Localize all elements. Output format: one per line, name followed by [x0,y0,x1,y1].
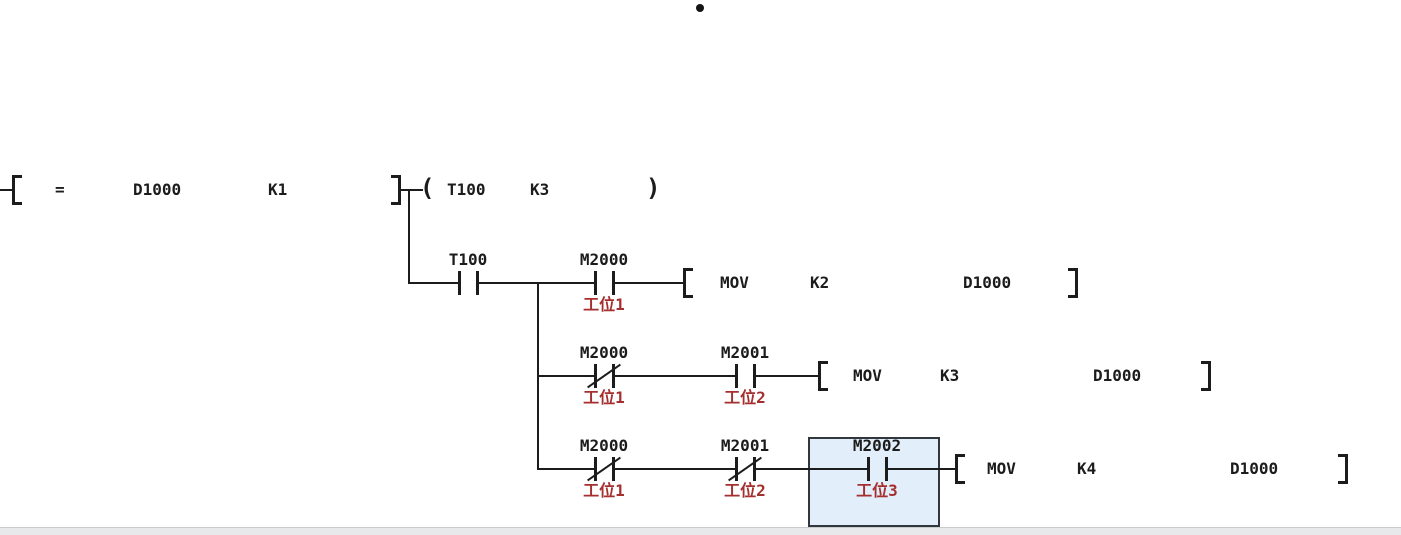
contact-bar [885,457,888,481]
contact-nc-m2001[interactable]: M2001 工位2 [705,437,785,501]
bullet-dot [696,4,704,12]
device-comment: 工位1 [583,296,625,314]
instruction-mov-k4-d1000[interactable]: MOV K4 D1000 [955,454,1348,484]
instruction-op: MOV [987,460,1016,478]
compare-arg2: K1 [268,181,287,199]
bottom-scrollbar-edge[interactable] [0,527,1401,535]
close-bracket-shape [1201,361,1211,391]
device-comment: 工位2 [724,389,766,407]
nc-slash [587,457,621,482]
device-comment: 工位1 [583,389,625,407]
close-bracket-shape [1068,268,1078,298]
contact-bar [612,271,615,295]
instruction-dst: D1000 [1093,367,1141,385]
coil-open-paren: ( [420,175,434,201]
contact-nc-m2000[interactable]: M2000 工位1 [564,344,644,408]
device-label: M2001 [721,437,769,455]
compare-block-eq-d1000-k1[interactable]: = D1000 K1 [12,175,401,205]
ladder-editor-canvas: = D1000 K1 ( T100 K3 ) T100 M2000 工位1 MO… [0,0,1401,535]
device-label: M2000 [580,344,628,362]
nc-slash [728,457,762,482]
close-bracket-shape [1338,454,1348,484]
instruction-op: MOV [720,274,749,292]
contact-bar [594,364,597,388]
instruction-dst: D1000 [1230,460,1278,478]
contact-no-m2002-selected[interactable]: M2002 工位3 [837,437,917,501]
contact-bar [476,271,479,295]
coil-close-paren: ) [646,175,660,201]
open-bracket-shape [955,454,965,484]
open-bracket-shape [818,361,828,391]
contact-bar [867,457,870,481]
device-label: T100 [449,251,488,269]
device-comment: 工位2 [724,482,766,500]
compare-arg1: D1000 [133,181,181,199]
device-label: M2002 [853,437,901,455]
instruction-mov-k3-d1000[interactable]: MOV K3 D1000 [818,361,1211,391]
timer-coil-t100[interactable]: ( T100 K3 ) [420,174,665,204]
instruction-op: MOV [853,367,882,385]
nc-slash [587,364,621,389]
contact-bar [753,364,756,388]
instruction-src: K3 [940,367,959,385]
device-label: M2000 [580,251,628,269]
contact-bar [735,457,738,481]
coil-device: T100 [447,181,486,199]
contact-no-t100[interactable]: T100 [428,251,508,315]
contact-bar [594,457,597,481]
device-label: M2000 [580,437,628,455]
open-bracket-shape [12,175,22,205]
wire-branch-vertical-1 [408,189,410,284]
device-comment: 工位1 [583,482,625,500]
close-bracket-shape [391,175,401,205]
instruction-src: K4 [1077,460,1096,478]
contact-bar [594,271,597,295]
open-bracket-shape [683,268,693,298]
contact-bar [735,364,738,388]
device-label: M2001 [721,344,769,362]
device-comment: 工位3 [856,482,898,500]
compare-operator: = [55,181,65,199]
coil-preset: K3 [530,181,549,199]
contact-bar [458,271,461,295]
instruction-mov-k2-d1000[interactable]: MOV K2 D1000 [683,268,1078,298]
contact-no-m2000[interactable]: M2000 工位1 [564,251,644,315]
instruction-dst: D1000 [963,274,1011,292]
contact-no-m2001[interactable]: M2001 工位2 [705,344,785,408]
instruction-src: K2 [810,274,829,292]
contact-nc-m2000-r4[interactable]: M2000 工位1 [564,437,644,501]
